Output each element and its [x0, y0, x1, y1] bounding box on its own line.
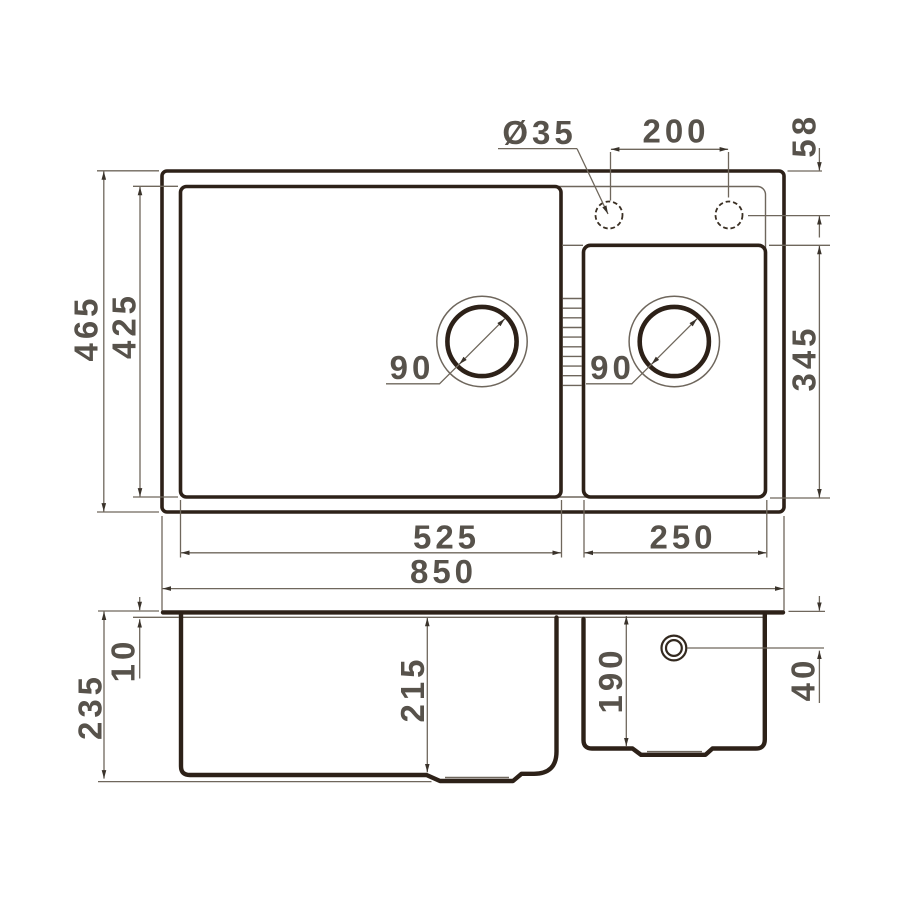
- svg-text:Ø35: Ø35: [502, 114, 576, 151]
- svg-text:58: 58: [786, 113, 823, 158]
- svg-text:10: 10: [105, 638, 142, 683]
- svg-text:235: 235: [72, 673, 109, 740]
- svg-text:90: 90: [590, 349, 635, 386]
- svg-text:200: 200: [642, 113, 709, 150]
- svg-text:40: 40: [785, 657, 822, 702]
- svg-text:465: 465: [68, 294, 105, 361]
- svg-text:345: 345: [786, 324, 823, 391]
- svg-text:425: 425: [106, 292, 143, 359]
- svg-text:90: 90: [390, 349, 435, 386]
- svg-text:250: 250: [649, 519, 716, 556]
- svg-text:215: 215: [394, 655, 431, 722]
- svg-text:525: 525: [413, 519, 480, 556]
- svg-text:190: 190: [592, 646, 629, 713]
- svg-text:850: 850: [410, 553, 477, 590]
